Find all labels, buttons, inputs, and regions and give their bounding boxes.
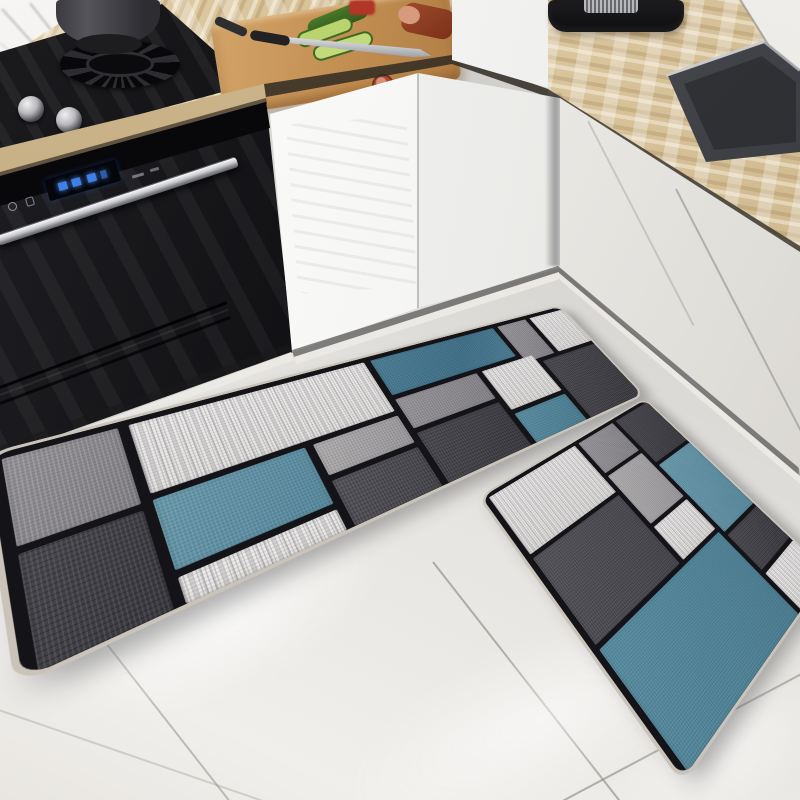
display-digit (86, 173, 97, 183)
burner-inner (86, 51, 154, 77)
cabinet-door-seam (417, 73, 419, 308)
red-jar (349, 0, 375, 15)
display-digit (57, 181, 68, 191)
inner-corner-shadow (546, 94, 562, 266)
pot-base (76, 34, 142, 54)
display-digit (71, 177, 82, 187)
coffee-machine-grill (584, 0, 638, 13)
display-digit (100, 170, 108, 179)
hob-knob (18, 96, 44, 122)
product-photo (0, 0, 800, 800)
door-reflection-streaks (286, 116, 418, 294)
